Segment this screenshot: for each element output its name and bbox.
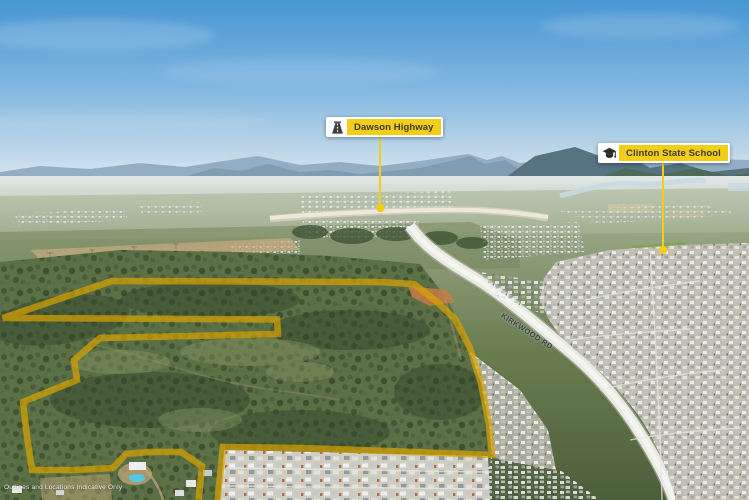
dawson-dot	[376, 204, 384, 212]
callout-school-label: Clinton State School	[619, 145, 728, 161]
highway-icon	[328, 119, 347, 135]
aerial-marketing-image: Dawson Highway Clinton State School KIRK…	[0, 0, 749, 500]
callout-clinton-state-school: Clinton State School	[598, 143, 730, 163]
graduation-cap-icon	[600, 145, 619, 161]
callout-dawson-highway: Dawson Highway	[326, 117, 443, 137]
disclaimer-text: Outlines and Locations Indicative Only	[4, 484, 122, 491]
callout-dawson-label: Dawson Highway	[347, 119, 441, 135]
aerial-photo-scene	[0, 0, 749, 500]
school-dot	[659, 246, 667, 254]
